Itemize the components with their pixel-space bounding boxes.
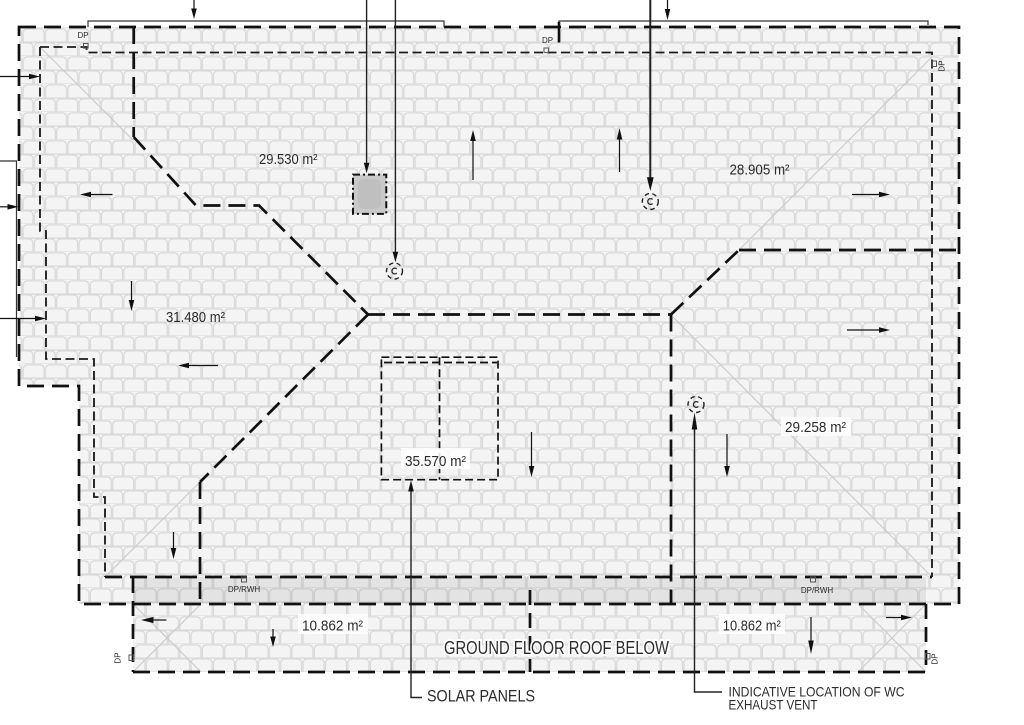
svg-text:DP: DP [931,653,940,664]
svg-text:29.258 m²: 29.258 m² [785,420,846,436]
svg-text:DP: DP [114,652,123,663]
svg-text:DP: DP [542,36,553,45]
svg-text:10.862 m²: 10.862 m² [723,619,781,635]
svg-text:EXHAUST VENT: EXHAUST VENT [729,697,818,713]
svg-text:DP/RWH: DP/RWH [228,585,261,594]
svg-text:SOLAR PANELS: SOLAR PANELS [427,687,535,706]
svg-text:31.480 m²: 31.480 m² [166,310,225,326]
svg-text:DP: DP [938,60,947,71]
svg-text:10.862 m²: 10.862 m² [302,619,363,635]
svg-text:GROUND FLOOR ROOF BELOW: GROUND FLOOR ROOF BELOW [444,637,669,658]
svg-text:DP: DP [77,31,88,40]
svg-text:28.905 m²: 28.905 m² [730,163,790,179]
svg-text:DP/RWH: DP/RWH [801,586,834,595]
svg-text:29.530 m²: 29.530 m² [259,152,318,168]
svg-text:35.570 m²: 35.570 m² [405,454,466,470]
